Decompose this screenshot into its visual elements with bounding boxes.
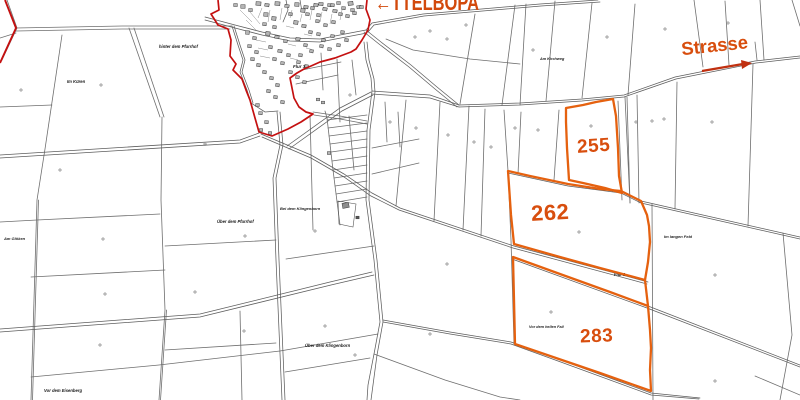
svg-text:255: 255 [576, 135, 611, 158]
svg-text:Vor dem Eisenberg: Vor dem Eisenberg [44, 388, 82, 393]
svg-text:Vor dem hellen Fail: Vor dem hellen Fail [529, 325, 565, 329]
svg-text:Im Küren: Im Küren [67, 79, 86, 84]
svg-text:Bei dem Klingenborn: Bei dem Klingenborn [280, 206, 321, 211]
svg-text:hinter dem Pfarrhof: hinter dem Pfarrhof [159, 44, 198, 49]
svg-text:Am Glöken: Am Glöken [3, 236, 26, 241]
svg-text:Über dem Pfarrhof: Über dem Pfarrhof [217, 219, 254, 224]
svg-text:Flur 3: Flur 3 [293, 64, 306, 69]
svg-text:Über dem Klingenborn: Über dem Klingenborn [305, 343, 351, 348]
svg-text:283: 283 [580, 325, 614, 347]
svg-text:←TTELBOPA: ←TTELBOPA [375, 0, 479, 15]
svg-text:262: 262 [530, 199, 569, 226]
svg-text:Am Kirchweg: Am Kirchweg [539, 57, 565, 61]
svg-text:Im langen Feld: Im langen Feld [664, 234, 693, 239]
